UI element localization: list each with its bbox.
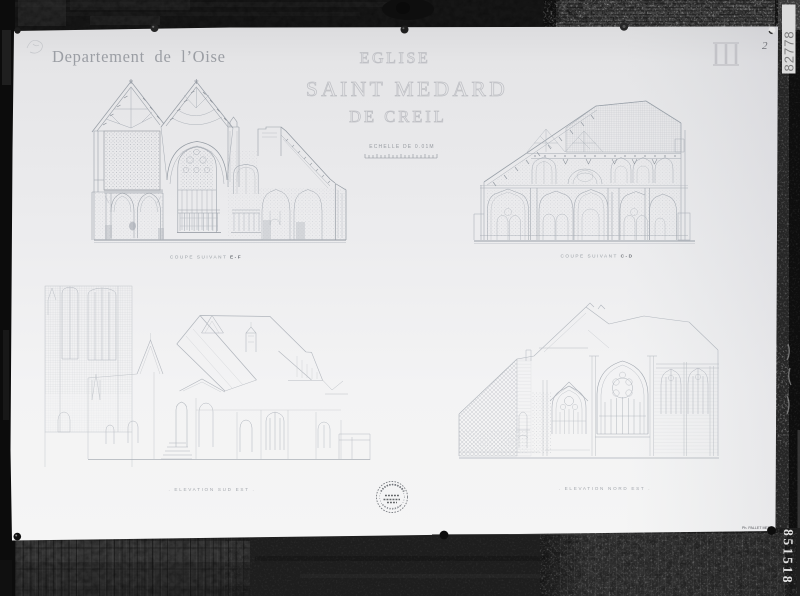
svg-text:82778: 82778 (782, 30, 797, 71)
svg-text:COUPE SUIVANT C-D: COUPE SUIVANT C-D (560, 254, 633, 259)
svg-text:. ELEVATION SUD EST .: . ELEVATION SUD EST . (168, 487, 255, 492)
svg-text:SAINT MEDARD: SAINT MEDARD (306, 77, 508, 101)
svg-text:EGLISE: EGLISE (360, 50, 431, 67)
svg-text:. ELEVATION NORD EST .: . ELEVATION NORD EST . (559, 486, 652, 491)
svg-text:DE CREIL: DE CREIL (349, 107, 447, 126)
svg-text:851518: 851518 (780, 529, 796, 585)
svg-text:Departement de l’Oise: Departement de l’Oise (52, 47, 226, 66)
svg-text:COUPE SUIVANT E-F: COUPE SUIVANT E-F (170, 255, 242, 260)
svg-text:ECHELLE DE 0.01M: ECHELLE DE 0.01M (369, 144, 435, 150)
svg-text:2: 2 (762, 40, 768, 52)
svg-text:Ph. PALLET MED: Ph. PALLET MED (742, 526, 771, 530)
